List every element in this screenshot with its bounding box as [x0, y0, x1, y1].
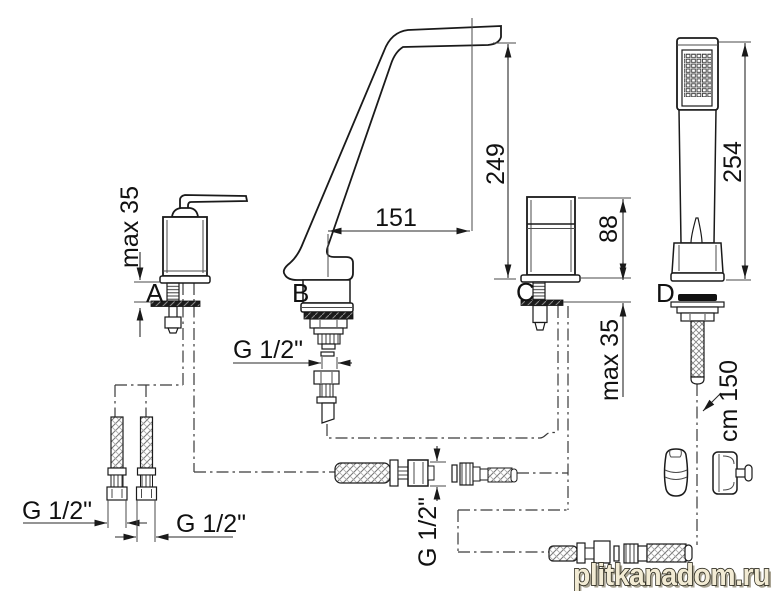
component-a-label: A: [146, 278, 164, 308]
d-rubber-gasket: [678, 294, 717, 301]
a-base-ring: [160, 276, 210, 283]
hose1-nut: [107, 487, 127, 500]
d-flange: [671, 302, 724, 307]
b-hex-adapter: [314, 371, 339, 384]
c-threaded-shank: [533, 282, 545, 300]
dimension-max35-a: max 35: [116, 186, 161, 337]
d-nozzle-grid: [684, 53, 711, 97]
b-mounting-nut: [310, 319, 347, 328]
dimension-254: 254: [719, 42, 751, 280]
component-b-label: B: [292, 278, 309, 308]
b-washer: [321, 352, 334, 356]
dim-g12-b-label: G 1/2": [233, 336, 303, 364]
watermark: plitkanadom.ru plitkanadom.ru: [573, 557, 772, 591]
dim-cm150-label: cm 150: [715, 360, 743, 442]
component-d-label: D: [656, 278, 675, 308]
diagram-canvas: max 35 A G 1/2" B 151: [0, 0, 772, 591]
dimension-g12-hose2: G 1/2": [115, 500, 246, 542]
d-mounting-nut: [681, 313, 714, 321]
a-mounting-nut: [165, 317, 181, 328]
b-column: [303, 280, 350, 303]
component-c-valve: [521, 197, 580, 330]
dim-max35-c-label: max 35: [596, 319, 624, 401]
component-a-valve: [151, 195, 247, 333]
mid-hose-nut: [408, 460, 428, 486]
d-shower-hose: [691, 321, 704, 377]
dim-249-label: 249: [482, 143, 510, 185]
component-c-label: C: [516, 277, 535, 307]
dim-88-label: 88: [595, 215, 623, 243]
b-threaded-collar: [318, 334, 340, 344]
dim-151-label: 151: [375, 204, 417, 232]
dim-g12-middle-label: G 1/2": [414, 497, 442, 567]
dim-g12-hose1-label: G 1/2": [22, 497, 92, 525]
b-spout-body: [284, 26, 501, 280]
dimension-cm150: cm 150: [703, 360, 743, 442]
dimension-249: 249: [482, 43, 516, 279]
b-tailpiece: [322, 403, 334, 423]
c-body: [527, 197, 575, 275]
hose1-braid: [111, 417, 123, 468]
dim-g12-hose2-label: G 1/2": [176, 510, 246, 538]
d-base-ring: [671, 273, 724, 281]
hose2-braid: [141, 417, 153, 468]
bracket-parts: [665, 449, 753, 496]
dimension-g12-hose1: G 1/2": [22, 497, 147, 528]
watermark-text: plitkanadom.ru: [573, 557, 770, 591]
dimension-88: 88: [578, 198, 631, 278]
a-threaded-shank: [167, 283, 179, 301]
a-body: [163, 217, 207, 276]
b-flange-gasket: [304, 312, 353, 319]
hose2-nut: [137, 487, 157, 500]
mid-connector: [460, 463, 473, 485]
mid-washer: [452, 465, 457, 482]
dimension-max35-c: max 35: [563, 267, 631, 401]
supply-hoses: [107, 417, 157, 500]
c-mounting-nut: [533, 306, 547, 323]
d-holder-cup: [672, 243, 723, 273]
middle-connector-hose: [335, 460, 517, 486]
component-d-handshower: [671, 38, 724, 384]
faucet-installation-diagram: max 35 A G 1/2" B 151: [0, 0, 772, 591]
mid-hose2-braid: [488, 468, 512, 482]
dim-max35-a-label: max 35: [116, 186, 144, 268]
mid-hose-braid: [335, 463, 390, 483]
wall-bracket: [713, 452, 737, 494]
dim-254-label: 254: [719, 141, 747, 183]
a-handle-dome: [172, 208, 198, 217]
